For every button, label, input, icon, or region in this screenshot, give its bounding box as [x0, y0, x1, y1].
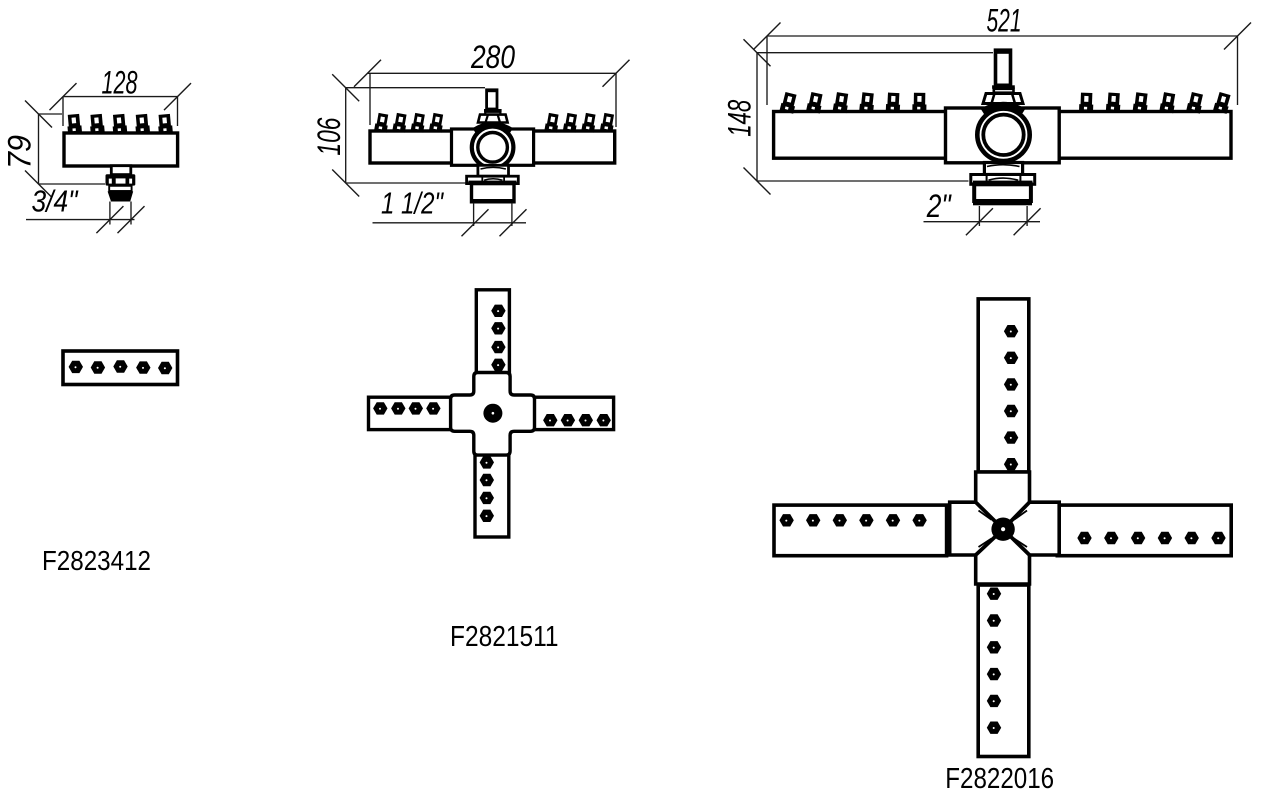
svg-text:128: 128 — [102, 65, 138, 101]
svg-text:280: 280 — [470, 39, 515, 75]
svg-text:148: 148 — [722, 100, 758, 137]
svg-text:F2823412: F2823412 — [42, 545, 151, 576]
svg-text:106: 106 — [311, 117, 347, 155]
svg-text:F2821511: F2821511 — [450, 621, 559, 653]
svg-text:2": 2" — [926, 188, 952, 224]
svg-text:3/4": 3/4" — [32, 184, 80, 219]
svg-text:79: 79 — [2, 135, 38, 169]
svg-text:F2822016: F2822016 — [945, 763, 1054, 795]
svg-text:521: 521 — [987, 3, 1022, 39]
svg-text:1 1/2": 1 1/2" — [381, 186, 445, 221]
